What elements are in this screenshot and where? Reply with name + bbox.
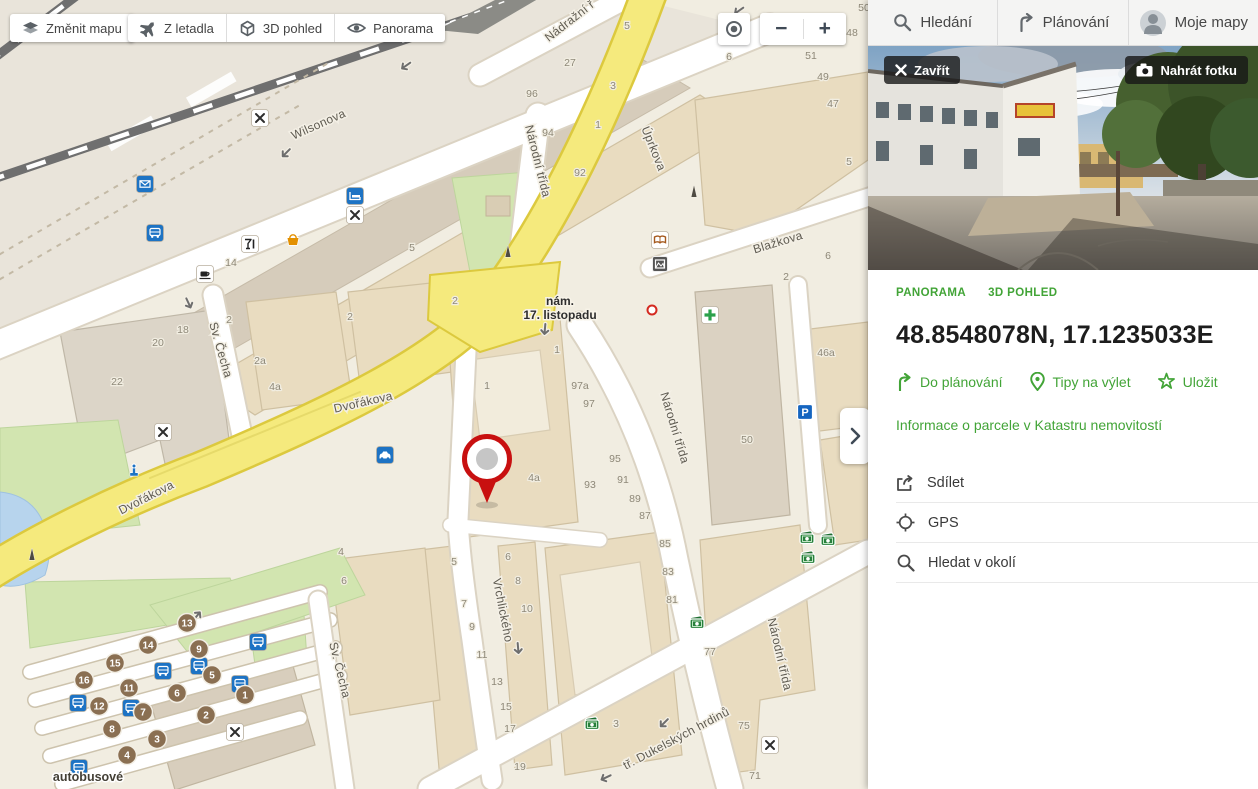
house-number: 13: [491, 676, 503, 688]
change-map-label: Změnit mapu: [46, 21, 122, 36]
house-number: 1: [595, 119, 601, 131]
share-label: Sdílet: [927, 475, 964, 491]
platform-marker[interactable]: 11: [120, 679, 139, 698]
aerial-label: Z letadla: [164, 21, 214, 36]
svg-text:13: 13: [181, 619, 193, 630]
poi-ring-icon[interactable]: [648, 306, 657, 315]
poi-atm-icon[interactable]: [821, 533, 835, 546]
poi-bar-icon[interactable]: [242, 236, 259, 253]
svg-text:16: 16: [78, 676, 90, 687]
house-number: 11: [477, 649, 488, 661]
house-number: 22: [111, 376, 123, 388]
house-number: 92: [574, 167, 586, 179]
view-tabs: PANORAMA 3D POHLED: [896, 287, 1258, 299]
square-label: nám.: [546, 294, 574, 308]
house-number: 5: [624, 20, 630, 32]
poi-bus-icon[interactable]: [147, 225, 164, 242]
gps-label: GPS: [928, 515, 959, 531]
house-number: 96: [526, 88, 538, 100]
layers-icon: [22, 21, 39, 36]
platform-marker[interactable]: 1: [236, 686, 255, 705]
house-number: 50: [741, 434, 753, 446]
close-label: Zavřít: [914, 63, 949, 78]
house-number: 2: [226, 314, 232, 326]
house-number: 5: [451, 556, 457, 568]
zoom-in-button[interactable]: +: [804, 14, 847, 44]
svg-text:15: 15: [109, 659, 121, 670]
poi-fountain-icon[interactable]: [130, 464, 138, 476]
house-number: 47: [827, 98, 839, 110]
poi-pharmacy-icon[interactable]: [702, 307, 719, 324]
platform-marker[interactable]: 6: [168, 684, 187, 703]
view3d-label: 3D pohled: [263, 21, 322, 36]
gps-icon: [896, 513, 915, 532]
house-number: 49: [817, 71, 829, 83]
house-number: 75: [738, 720, 750, 732]
house-number: 6: [825, 250, 831, 262]
house-number: 1: [554, 344, 560, 356]
route-icon: [1017, 13, 1035, 32]
platform-marker[interactable]: 3: [148, 730, 167, 749]
svg-text:7: 7: [140, 708, 146, 719]
house-number: 95: [609, 453, 621, 465]
save-label: Uložit: [1183, 374, 1218, 390]
tab-search[interactable]: Hledání: [868, 0, 997, 45]
poi-cafe-icon[interactable]: [197, 266, 214, 283]
view-tab-panorama[interactable]: PANORAMA: [896, 287, 966, 299]
locate-button[interactable]: [718, 13, 750, 45]
house-number: 8: [515, 575, 521, 587]
app: P131491516511611272834WilsonovaNádražní …: [0, 0, 1258, 789]
svg-text:12: 12: [93, 702, 105, 713]
panel-tabs: Hledání Plánování Moje mapy: [868, 0, 1258, 46]
svg-text:11: 11: [124, 684, 135, 695]
poi-taxi-icon[interactable]: [377, 447, 394, 464]
house-number: 15: [500, 701, 512, 713]
house-number: 6: [505, 551, 511, 563]
house-number: 14: [225, 257, 237, 269]
poi-bus-icon[interactable]: [70, 695, 87, 712]
house-number: 18: [177, 324, 189, 336]
search-nearby-label: Hledat v okolí: [928, 555, 1016, 571]
house-number: 1: [484, 380, 490, 392]
poi-atm-icon[interactable]: [690, 616, 704, 629]
poi-bus-icon[interactable]: [155, 663, 172, 680]
view3d-button[interactable]: 3D pohled: [226, 14, 334, 42]
house-number: 19: [514, 761, 526, 773]
star-icon: [1157, 372, 1176, 391]
house-number: 2: [783, 271, 789, 283]
search-icon: [893, 13, 912, 32]
avatar-icon: [1139, 9, 1167, 37]
add-to-plan-button[interactable]: Do plánování: [896, 373, 1003, 391]
platform-marker[interactable]: 14: [139, 636, 158, 655]
tab-my-maps[interactable]: Moje mapy: [1128, 0, 1258, 45]
close-button[interactable]: Zavřít: [884, 56, 960, 84]
tab-search-label: Hledání: [920, 14, 972, 31]
platform-marker[interactable]: 7: [134, 703, 153, 722]
oneway-arrow: [183, 297, 194, 309]
search-nearby-menu-item[interactable]: Hledat v okolí: [896, 543, 1258, 582]
cube-icon: [239, 20, 256, 37]
house-number: 93: [584, 479, 596, 491]
poi-mail-icon[interactable]: [137, 176, 154, 193]
house-number: 71: [749, 770, 761, 782]
poi-atm-icon[interactable]: [585, 717, 599, 730]
square-label: 17. listopadu: [523, 308, 596, 322]
map-svg: P131491516511611272834WilsonovaNádražní …: [0, 0, 868, 789]
platform-marker[interactable]: 12: [90, 697, 109, 716]
poi-restaurant-icon[interactable]: [252, 110, 269, 127]
house-number: 89: [629, 493, 641, 505]
share-menu-item[interactable]: Sdílet: [896, 463, 1258, 502]
upload-photo-button[interactable]: Nahrát fotku: [1125, 56, 1248, 84]
platform-marker[interactable]: 2: [197, 706, 216, 725]
house-number: 27: [564, 57, 576, 69]
house-number: 50: [858, 2, 868, 14]
coordinates-title: 48.8548078N, 17.1235033E: [896, 321, 1258, 350]
svg-text:2: 2: [203, 711, 209, 722]
svg-text:5: 5: [209, 671, 215, 682]
house-number: 2: [347, 311, 353, 323]
close-icon: [895, 64, 907, 76]
poi-restaurant-icon[interactable]: [227, 724, 244, 741]
house-number: 20: [152, 337, 164, 349]
house-number: 4: [338, 546, 344, 558]
cadastre-link[interactable]: Informace o parcele v Katastru nemovitos…: [896, 417, 1162, 433]
panel-menu: Sdílet GPS Hledat v okolí: [896, 463, 1258, 583]
platform-marker[interactable]: 4: [118, 746, 137, 765]
trip-tips-label: Tipy na výlet: [1053, 374, 1131, 390]
house-number: 10: [521, 603, 533, 615]
house-number: 81: [666, 594, 678, 606]
chevron-right-icon: [848, 426, 862, 446]
tab-planning[interactable]: Plánování: [997, 0, 1127, 45]
platform-marker[interactable]: 5: [203, 666, 222, 685]
house-number: 2: [452, 295, 458, 307]
poi-restaurant-icon[interactable]: [155, 424, 172, 441]
panorama-button[interactable]: Panorama: [334, 14, 445, 42]
poi-parking-icon[interactable]: P: [798, 405, 813, 420]
oneway-arrow: [600, 772, 612, 783]
house-number: 7: [461, 598, 467, 610]
poi-monument-icon[interactable]: [691, 186, 696, 198]
poi-shop-icon[interactable]: [288, 235, 299, 245]
house-number: 3: [613, 718, 619, 730]
panel-collapse-button[interactable]: [840, 408, 870, 464]
panorama-label: Panorama: [373, 21, 433, 36]
eye-icon: [347, 21, 366, 35]
svg-text:P: P: [801, 407, 808, 419]
house-number: 6: [341, 575, 347, 587]
svg-text:8: 8: [109, 725, 115, 736]
house-number: 91: [617, 474, 629, 486]
house-number: 6: [726, 51, 732, 63]
svg-text:9: 9: [196, 645, 202, 656]
view-tab-3d[interactable]: 3D POHLED: [988, 287, 1057, 299]
camera-icon: [1136, 63, 1153, 77]
house-number: 2a: [254, 355, 266, 367]
house-number: 5: [846, 156, 852, 168]
house-number: 48: [846, 27, 858, 39]
view-mode-buttons: Z letadla 3D pohled Panorama: [128, 14, 445, 42]
panorama-photo[interactable]: Zavřít Nahrát fotku: [868, 46, 1258, 270]
house-number: 9: [469, 621, 475, 633]
poi-atm-icon[interactable]: [800, 531, 814, 544]
house-number: 77: [704, 646, 716, 658]
aerial-button[interactable]: Z letadla: [128, 14, 226, 42]
poi-atm-icon[interactable]: [801, 551, 815, 564]
platform-marker[interactable]: 8: [103, 720, 122, 739]
route-plan-icon: [896, 373, 913, 391]
poi-book-icon[interactable]: [652, 232, 669, 249]
divider: [896, 582, 1258, 583]
house-number: 4a: [269, 381, 281, 393]
panel-body: PANORAMA 3D POHLED 48.8548078N, 17.12350…: [868, 287, 1258, 583]
house-number: 17: [504, 723, 516, 735]
poi-bus-icon[interactable]: [250, 634, 267, 651]
gps-menu-item[interactable]: GPS: [896, 503, 1258, 542]
street-label: Národní třída: [657, 390, 692, 465]
platform-marker[interactable]: 9: [190, 640, 209, 659]
house-number: 97: [583, 398, 595, 410]
house-number: 85: [659, 538, 671, 550]
house-number: 94: [542, 127, 554, 139]
svg-text:14: 14: [142, 641, 154, 652]
add-to-plan-label: Do plánování: [920, 374, 1003, 390]
share-icon: [896, 474, 914, 492]
poi-restaurant-icon[interactable]: [347, 207, 364, 224]
svg-text:1: 1: [242, 691, 248, 702]
house-number: 51: [805, 50, 817, 62]
house-number: 4a: [528, 472, 540, 484]
svg-text:4: 4: [124, 751, 130, 762]
trip-tips-button[interactable]: Tipy na výlet: [1029, 372, 1131, 391]
side-panel: Hledání Plánování Moje mapy: [868, 0, 1258, 789]
locate-icon: [725, 20, 743, 38]
change-map-button[interactable]: Změnit mapu: [10, 14, 134, 42]
search-icon: [896, 553, 915, 572]
house-number: 5: [409, 242, 415, 254]
house-number: 87: [639, 510, 651, 522]
zoom-out-button[interactable]: −: [760, 14, 803, 44]
map-canvas[interactable]: P131491516511611272834WilsonovaNádražní …: [0, 0, 868, 789]
svg-text:3: 3: [154, 735, 160, 746]
action-row: Do plánování Tipy na výlet Uložit: [896, 372, 1258, 391]
platform-marker[interactable]: 15: [106, 654, 125, 673]
platform-marker[interactable]: 13: [178, 614, 197, 633]
upload-label: Nahrát fotku: [1160, 63, 1237, 78]
airplane-icon: [140, 20, 157, 37]
house-number: 83: [662, 566, 674, 578]
poi-museum-icon[interactable]: [653, 257, 668, 272]
bus-station-label: autobusové: [53, 770, 123, 784]
poi-restaurant-icon[interactable]: [762, 737, 779, 754]
house-number: 3: [610, 80, 616, 92]
tab-planning-label: Plánování: [1043, 14, 1110, 31]
poi-hotel-icon[interactable]: [347, 188, 364, 205]
house-number: 97a: [571, 380, 589, 392]
pin-outline-icon: [1029, 372, 1046, 391]
zoom-controls: − +: [760, 13, 846, 45]
svg-text:6: 6: [174, 689, 180, 700]
tab-my-maps-label: Moje mapy: [1175, 14, 1248, 31]
save-button[interactable]: Uložit: [1157, 372, 1218, 391]
house-number: 46a: [817, 347, 835, 359]
platform-marker[interactable]: 16: [75, 671, 94, 690]
